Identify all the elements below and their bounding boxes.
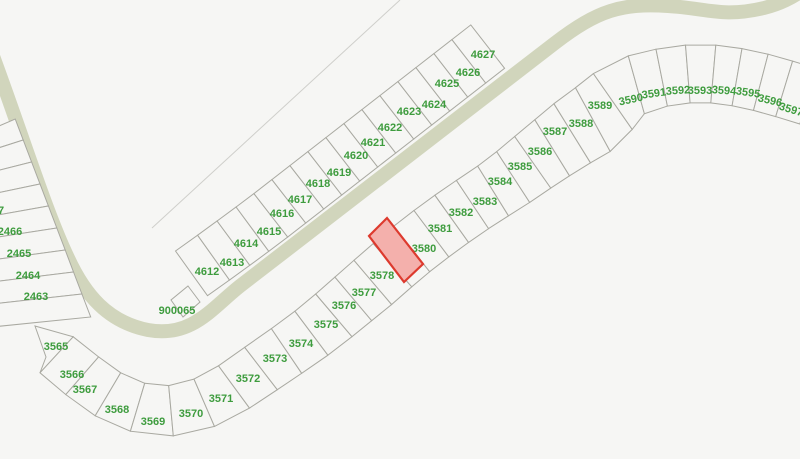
parcel-label-4625: 4625 xyxy=(435,78,459,90)
parcel-label-3573: 3573 xyxy=(263,353,287,365)
parcel-label-3588: 3588 xyxy=(569,118,593,130)
parcel-map-viewport[interactable]: 6724662465246424633565356635673568356935… xyxy=(0,0,800,459)
parcel-label-3575: 3575 xyxy=(314,319,338,331)
parcel-label-4616: 4616 xyxy=(270,208,294,220)
parcel-label-4623: 4623 xyxy=(397,106,421,118)
plat-map-svg[interactable]: 6724662465246424633565356635673568356935… xyxy=(0,0,800,459)
parcel-label-3574: 3574 xyxy=(289,338,314,350)
parcel-label-4614: 4614 xyxy=(234,238,259,250)
parcel-label-3576: 3576 xyxy=(332,300,356,312)
parcel-label-4621: 4621 xyxy=(361,137,385,149)
parcel-label-4627: 4627 xyxy=(471,49,495,61)
parcel-label-4612: 4612 xyxy=(195,266,219,278)
parcel-label-4617: 4617 xyxy=(288,194,312,206)
parcel-label-3571: 3571 xyxy=(209,393,233,405)
parcel-label-2465: 2465 xyxy=(7,248,31,260)
parcel-label-3583: 3583 xyxy=(473,196,497,208)
parcel-label-3581: 3581 xyxy=(428,223,452,235)
parcel-label-4619: 4619 xyxy=(327,167,351,179)
parcel-label-4624: 4624 xyxy=(422,99,447,111)
parcel-label-3570: 3570 xyxy=(179,408,203,420)
parcel-label-2464: 2464 xyxy=(16,270,41,282)
parcel-label-900065: 900065 xyxy=(159,305,196,317)
parcel-label-3568: 3568 xyxy=(105,404,129,416)
parcel-label-3569: 3569 xyxy=(141,416,165,428)
parcel-label-4620: 4620 xyxy=(344,150,368,162)
parcel-label-3578: 3578 xyxy=(370,270,394,282)
parcel-label-3577: 3577 xyxy=(352,287,376,299)
parcel-label-3593: 3593 xyxy=(688,85,712,97)
parcel-label-4626: 4626 xyxy=(456,67,480,79)
parcel-label-3594: 3594 xyxy=(711,84,737,98)
parcel-label-3586: 3586 xyxy=(528,146,552,158)
parcel-label-3584: 3584 xyxy=(488,176,513,188)
parcel-label-4622: 4622 xyxy=(378,122,402,134)
parcel-label-3587: 3587 xyxy=(543,126,567,138)
parcel-label-3589: 3589 xyxy=(588,100,612,112)
parcel-label-3585: 3585 xyxy=(508,161,532,173)
parcel-label-3566: 3566 xyxy=(60,369,84,381)
parcel-label-3572: 3572 xyxy=(236,373,260,385)
parcel-label-4613: 4613 xyxy=(220,257,244,269)
parcel-label-3582: 3582 xyxy=(449,207,473,219)
parcel-label-3567: 3567 xyxy=(73,384,97,396)
parcel-label-4618: 4618 xyxy=(306,178,330,190)
parcel-label-2463: 2463 xyxy=(24,291,48,303)
parcel-label-3565: 3565 xyxy=(44,341,68,353)
parcel-label-2466: 2466 xyxy=(0,226,22,238)
parcel-label-67: 67 xyxy=(0,205,4,217)
parcel-label-4615: 4615 xyxy=(257,226,281,238)
